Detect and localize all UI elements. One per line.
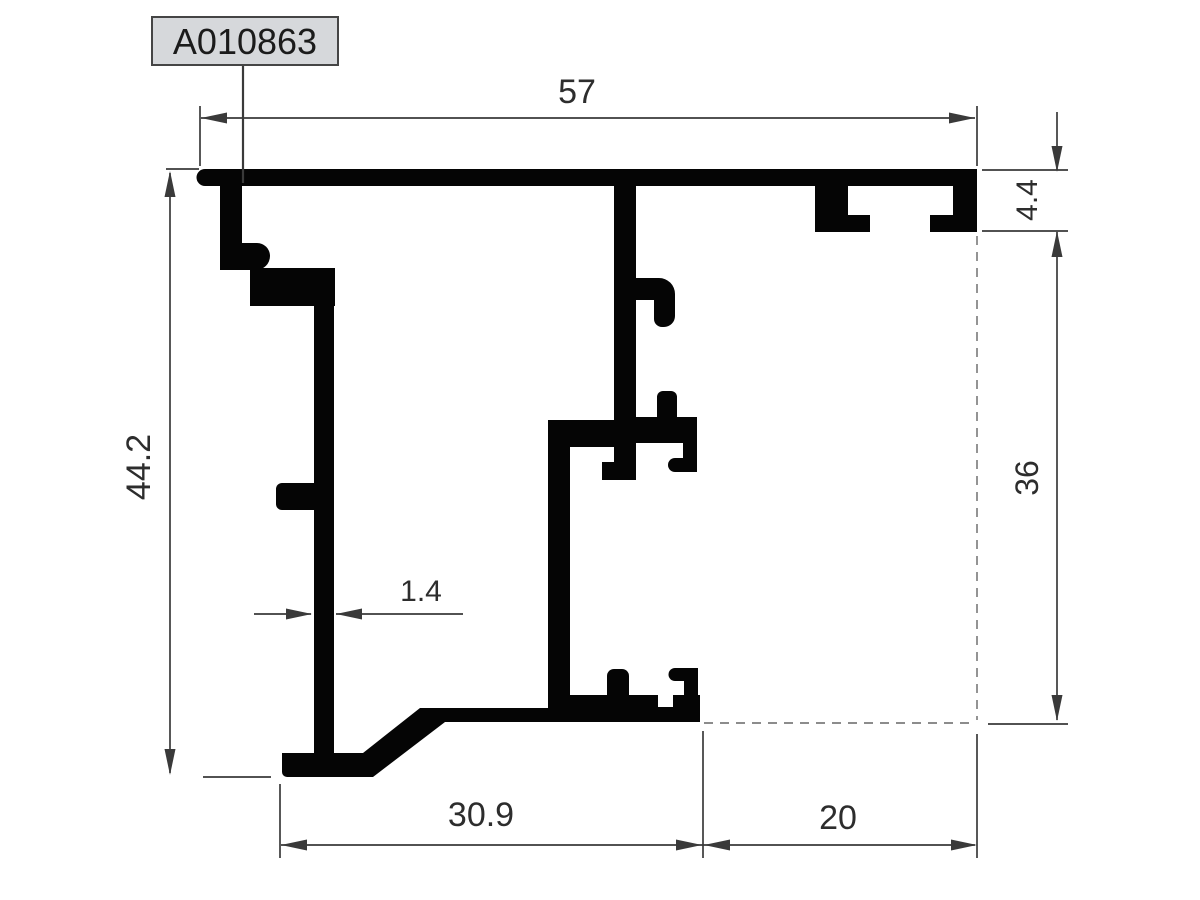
arrow-20-right: [951, 840, 977, 851]
arrow-309-left: [281, 840, 307, 851]
dim-442-label: 44.2: [120, 434, 158, 500]
arrow-20-left: [704, 840, 730, 851]
profile-channel-left-foot: [848, 215, 870, 232]
arrow-57-right: [949, 113, 975, 124]
arrow-14-right: [336, 609, 362, 620]
profile-second-wall: [548, 420, 570, 722]
profile-bottom-notch: [658, 694, 673, 707]
profile-left-tab: [276, 483, 314, 510]
dimension-labels: 57 4.4 36 44.2 1.4 30.9 20: [120, 73, 1045, 837]
profile-bottom-hook-curl: [669, 668, 698, 681]
profile-channel-left-rib: [815, 186, 848, 232]
arrow-57-left: [201, 113, 227, 124]
profile-middle-hook-tip: [668, 458, 697, 472]
profile-right-lip-foot: [930, 215, 953, 232]
profile-upper-hook: [636, 278, 675, 327]
arrow-44mm-top: [1052, 146, 1063, 172]
hidden-extension-lines: [704, 236, 977, 723]
dim-309-label: 30.9: [448, 796, 514, 834]
dim-20-label: 20: [819, 799, 857, 837]
profile-cross-section: [197, 169, 978, 777]
dimension-arrowheads: [165, 113, 1063, 851]
dim-57-label: 57: [558, 73, 596, 111]
profile-bottom-bar: [548, 695, 700, 722]
arrow-309-right: [676, 840, 702, 851]
profile-center-wall-foot: [602, 462, 636, 480]
arrow-442-top: [165, 171, 176, 197]
part-label: A010863: [152, 17, 338, 65]
arrow-44mm-bottom: [1052, 231, 1063, 257]
dim-14-label: 1.4: [400, 575, 442, 608]
profile-drawing-svg: 57 4.4 36 44.2 1.4 30.9 20 A010863: [0, 0, 1200, 900]
profile-top-flange: [197, 169, 978, 186]
arrow-442-bottom: [165, 749, 176, 775]
profile-left-wall: [314, 304, 334, 755]
dim-36-label: 36: [1009, 460, 1045, 496]
profile-left-ledge: [250, 268, 335, 306]
part-label-text: A010863: [173, 21, 317, 62]
profile-left-upper-wall: [220, 186, 270, 270]
profile-right-lip: [953, 169, 977, 232]
arrow-14-left: [286, 609, 312, 620]
dim-44mm-label: 4.4: [1011, 179, 1044, 221]
arrow-36-bottom: [1052, 695, 1063, 721]
technical-drawing-page: 57 4.4 36 44.2 1.4 30.9 20 A010863: [0, 0, 1200, 900]
profile-bottom-tab: [607, 669, 629, 695]
profile-middle-tab: [657, 391, 677, 417]
